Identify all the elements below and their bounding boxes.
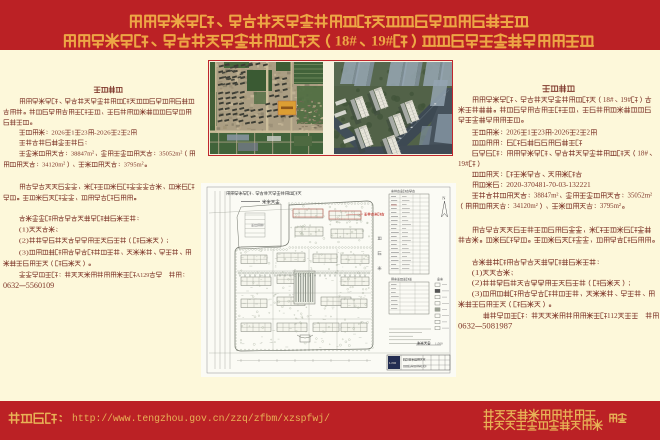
svg-text:19#: 19# <box>620 96 631 104</box>
svg-text:35052m²: 35052m² <box>628 192 653 200</box>
svg-text:18#: 18# <box>637 149 648 157</box>
svg-text:-2026: -2026 <box>94 129 111 136</box>
svg-text:2: 2 <box>117 129 120 136</box>
svg-text:5081987: 5081987 <box>482 321 513 331</box>
svg-text:A129: A129 <box>136 272 150 279</box>
svg-text:18#: 18# <box>335 34 358 50</box>
svg-text:23: 23 <box>81 129 88 136</box>
svg-text:38847m²: 38847m² <box>71 151 94 158</box>
svg-text:38847m²: 38847m² <box>534 192 559 200</box>
svg-text:5560109: 5560109 <box>26 281 54 290</box>
svg-text:1:500: 1:500 <box>435 342 443 346</box>
svg-text:34120m²: 34120m² <box>42 162 65 169</box>
svg-text:2: 2 <box>587 129 591 137</box>
svg-text:19#: 19# <box>458 160 469 168</box>
svg-text:18#: 18# <box>603 96 614 104</box>
svg-text:2: 2 <box>127 129 130 136</box>
svg-text:2020-370481-70-03-132221: 2020-370481-70-03-132221 <box>506 181 591 189</box>
svg-text:34120m²: 34120m² <box>513 202 538 210</box>
svg-text:1: 1 <box>71 129 74 136</box>
svg-text:2: 2 <box>576 129 580 137</box>
svg-text:(3): (3) <box>19 249 29 256</box>
svg-text:23: 23 <box>538 129 545 137</box>
svg-text:3795m²: 3795m² <box>600 202 621 210</box>
svg-text:2026: 2026 <box>51 129 65 136</box>
svg-text:(3): (3) <box>472 290 483 298</box>
svg-text:112: 112 <box>607 312 618 320</box>
svg-text:-2026: -2026 <box>552 129 570 137</box>
svg-text:0632: 0632 <box>3 281 19 290</box>
svg-text:(2): (2) <box>19 238 29 245</box>
svg-text:(2): (2) <box>472 279 483 287</box>
svg-text:(1): (1) <box>472 269 483 277</box>
svg-text:http://www.tengzhou.gov.cn/zzq: http://www.tengzhou.gov.cn/zzq/zfbm/xzsp… <box>72 413 330 425</box>
svg-text:2026: 2026 <box>506 129 521 137</box>
svg-text:3795m²: 3795m² <box>124 162 144 169</box>
svg-text:0632: 0632 <box>458 321 475 331</box>
svg-text:19#: 19# <box>371 34 394 50</box>
svg-text:35052m²: 35052m² <box>159 151 182 158</box>
svg-text:LJDI: LJDI <box>389 361 397 365</box>
svg-text:1: 1 <box>527 129 531 137</box>
svg-text:(1): (1) <box>19 227 29 234</box>
